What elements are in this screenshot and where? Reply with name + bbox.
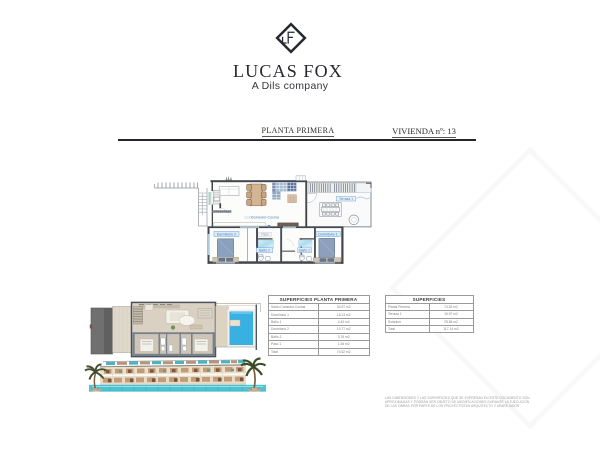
svg-text:Terraza 1: Terraza 1 bbox=[339, 197, 353, 201]
svg-text:Baño 1: Baño 1 bbox=[299, 249, 310, 253]
svg-text:Dormitorio 2: Dormitorio 2 bbox=[217, 233, 237, 237]
svg-text:Baño 2: Baño 2 bbox=[259, 249, 270, 253]
svg-text:Comedor-Cocina: Comedor-Cocina bbox=[251, 216, 280, 220]
svg-text:Paso: Paso bbox=[261, 233, 268, 237]
svg-text:Dormitorio 1: Dormitorio 1 bbox=[318, 233, 338, 237]
